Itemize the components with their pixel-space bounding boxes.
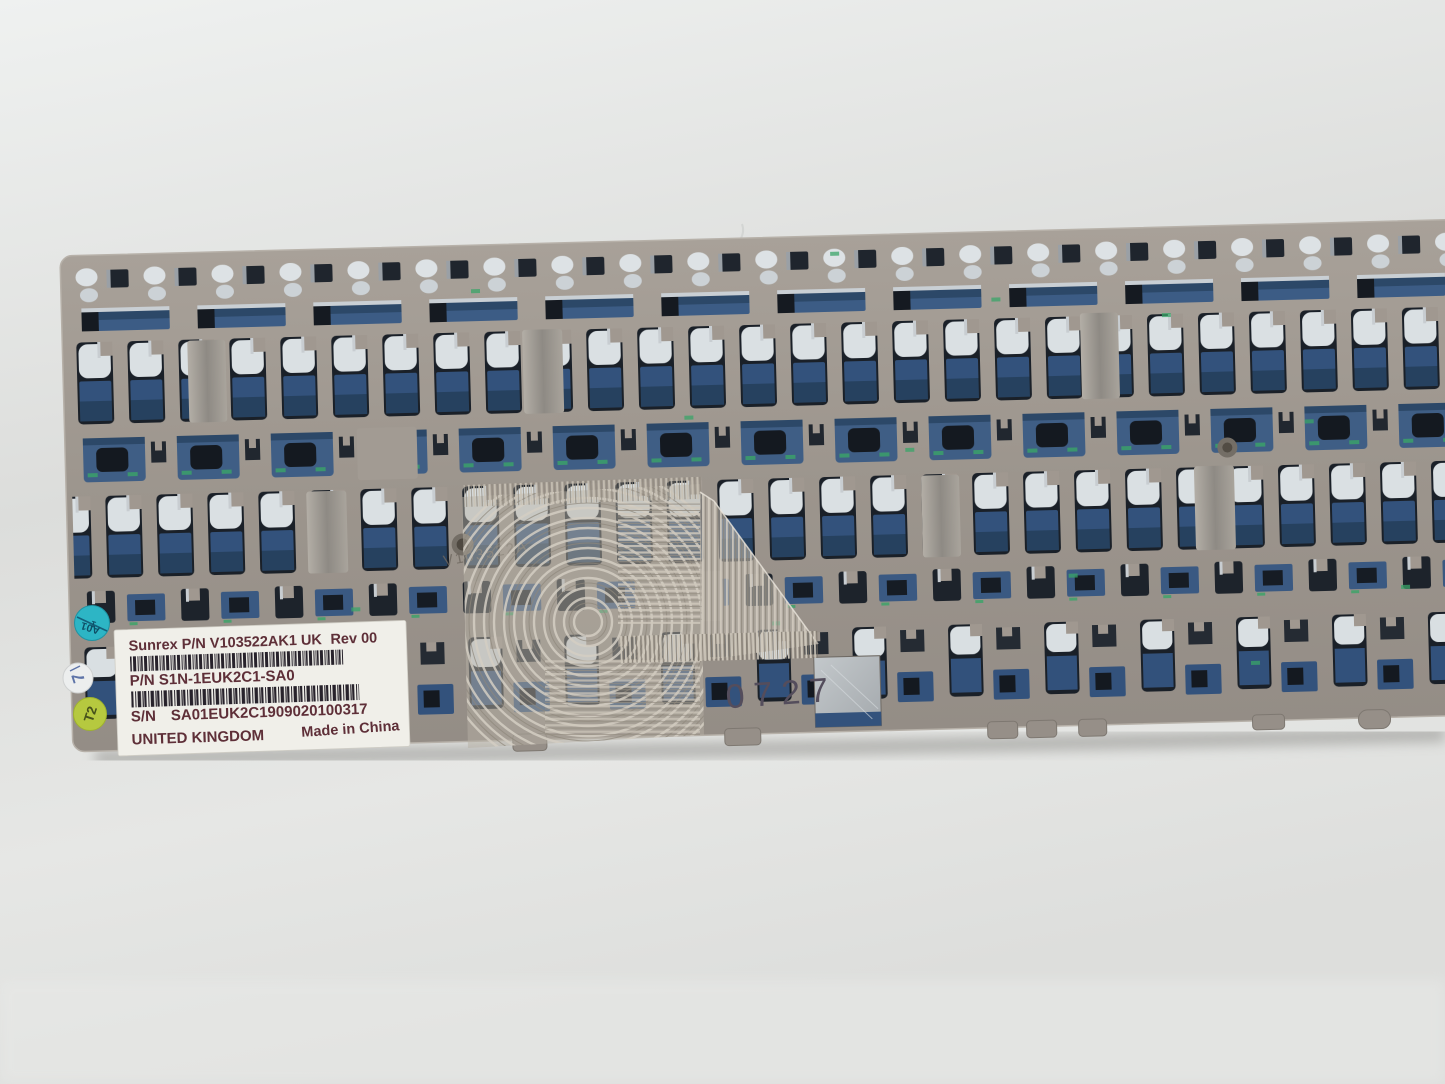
label-line1-rev: Rev 00	[330, 630, 377, 648]
ribbon-cable-connector-fringe	[620, 631, 819, 663]
photo-stage: V103522A	[0, 0, 1445, 1084]
sticker-t2: T2	[74, 698, 107, 731]
background-light-patch	[0, 980, 1445, 1084]
label-line3-sn-key: S/N	[131, 708, 157, 726]
sticker-a01: A01 1	[75, 606, 110, 641]
keyboard-backplate-photo: V103522A	[0, 0, 1445, 1084]
part-label: Sunrex P/N V103522AK1 UK Rev 00 P/N S1N-…	[114, 620, 410, 756]
date-stamp: 0727	[724, 671, 838, 717]
sticker-7: 7	[63, 663, 93, 693]
